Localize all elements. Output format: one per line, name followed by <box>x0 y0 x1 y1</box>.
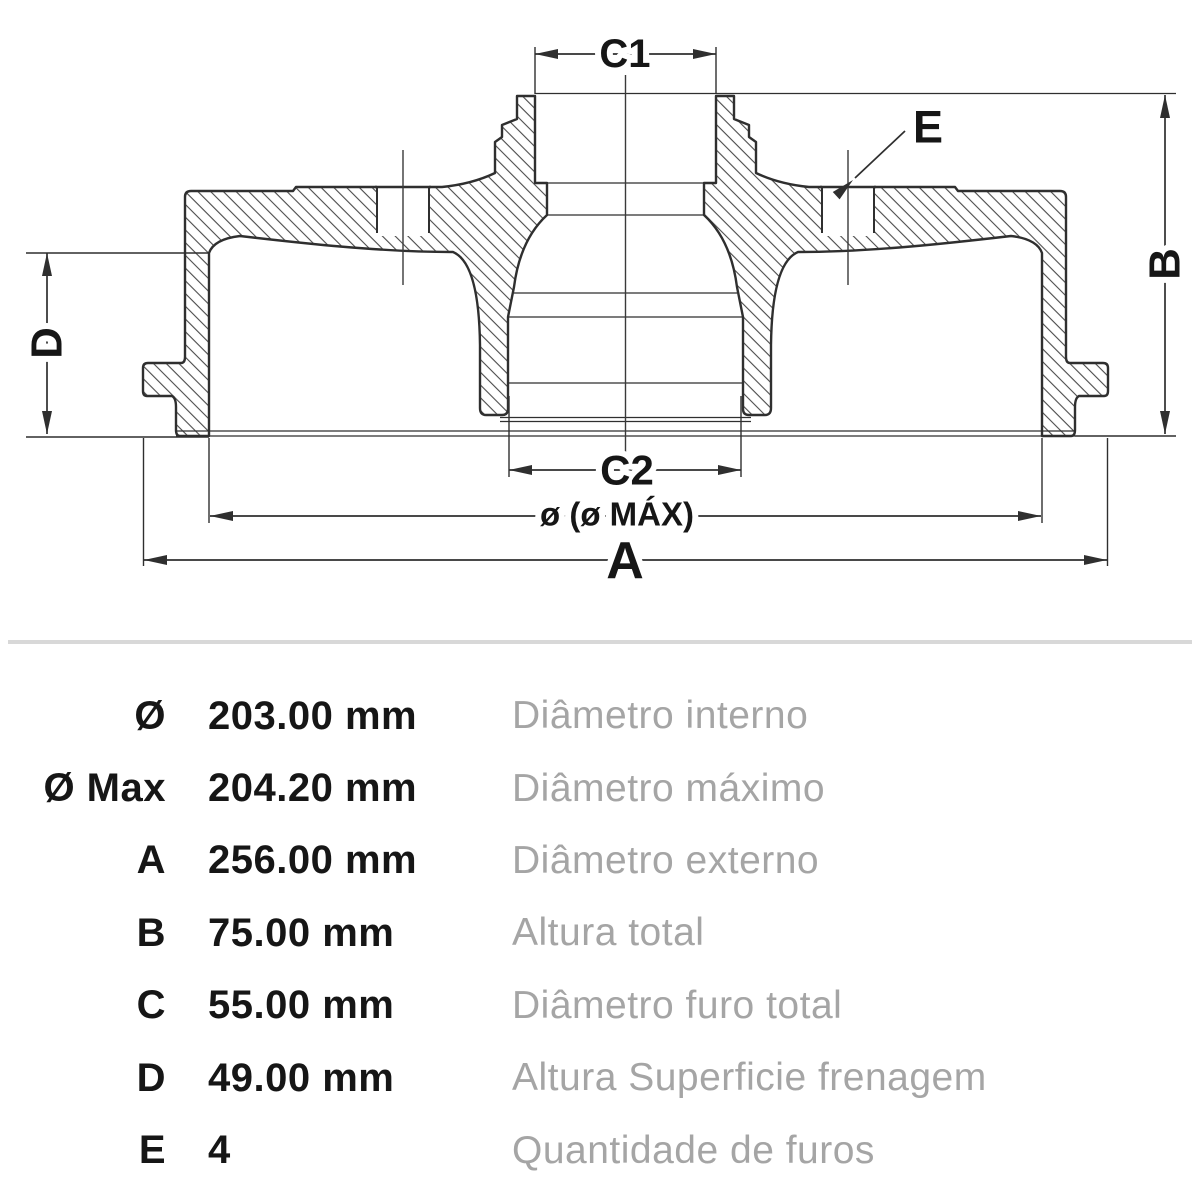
spec-table: Ø 203.00 mm Diâmetro interno Ø Max 204.2… <box>0 680 1200 1187</box>
spec-value: 75.00 mm <box>166 911 512 956</box>
spec-symbol: E <box>0 1128 166 1173</box>
spec-symbol: Ø Max <box>0 766 166 811</box>
brake-drum-spec-page: C1 E B D C2 ø (ø MÁX) A Ø 203.00 mm Diâm… <box>0 0 1200 1200</box>
spec-symbol: B <box>0 911 166 956</box>
dim-e-leader <box>855 131 905 178</box>
drum-section-left-body <box>143 96 547 436</box>
table-row: Ø 203.00 mm Diâmetro interno <box>0 680 1200 752</box>
spec-description: Diâmetro interno <box>512 694 1200 738</box>
dim-label-a: A <box>606 532 644 590</box>
spec-description: Altura Superficie frenagem <box>512 1056 1200 1100</box>
spec-description: Diâmetro máximo <box>512 767 1200 811</box>
table-row: D 49.00 mm Altura Superficie frenagem <box>0 1042 1200 1114</box>
spec-description: Altura total <box>512 911 1200 955</box>
spec-symbol: C <box>0 983 166 1028</box>
dim-label-c2: C2 <box>600 447 654 494</box>
spec-symbol: A <box>0 838 166 883</box>
spec-value: 55.00 mm <box>166 983 512 1028</box>
spec-value: 4 <box>166 1128 512 1173</box>
table-row: C 55.00 mm Diâmetro furo total <box>0 970 1200 1042</box>
table-row: B 75.00 mm Altura total <box>0 897 1200 969</box>
spec-value: 203.00 mm <box>166 694 512 739</box>
spec-symbol: Ø <box>0 694 166 739</box>
dim-label-c1: C1 <box>599 32 650 76</box>
section-divider <box>8 640 1192 644</box>
spec-symbol: D <box>0 1056 166 1101</box>
spec-description: Diâmetro furo total <box>512 984 1200 1028</box>
dim-label-b: B <box>1141 248 1190 280</box>
spec-value: 49.00 mm <box>166 1056 512 1101</box>
table-row: A 256.00 mm Diâmetro externo <box>0 825 1200 897</box>
dim-label-dia-max: ø (ø MÁX) <box>540 496 694 533</box>
table-row: Ø Max 204.20 mm Diâmetro máximo <box>0 752 1200 824</box>
drum-cross-section-drawing: C1 E B D C2 ø (ø MÁX) A <box>0 0 1200 620</box>
table-row: E 4 Quantidade de furos <box>0 1114 1200 1186</box>
spec-value: 256.00 mm <box>166 838 512 883</box>
dim-label-d: D <box>23 327 72 359</box>
spec-description: Diâmetro externo <box>512 839 1200 883</box>
drum-section-right-body <box>704 96 1108 436</box>
spec-description: Quantidade de furos <box>512 1129 1200 1173</box>
dim-label-e: E <box>913 102 943 153</box>
spec-value: 204.20 mm <box>166 766 512 811</box>
internal-edges <box>176 94 1176 437</box>
